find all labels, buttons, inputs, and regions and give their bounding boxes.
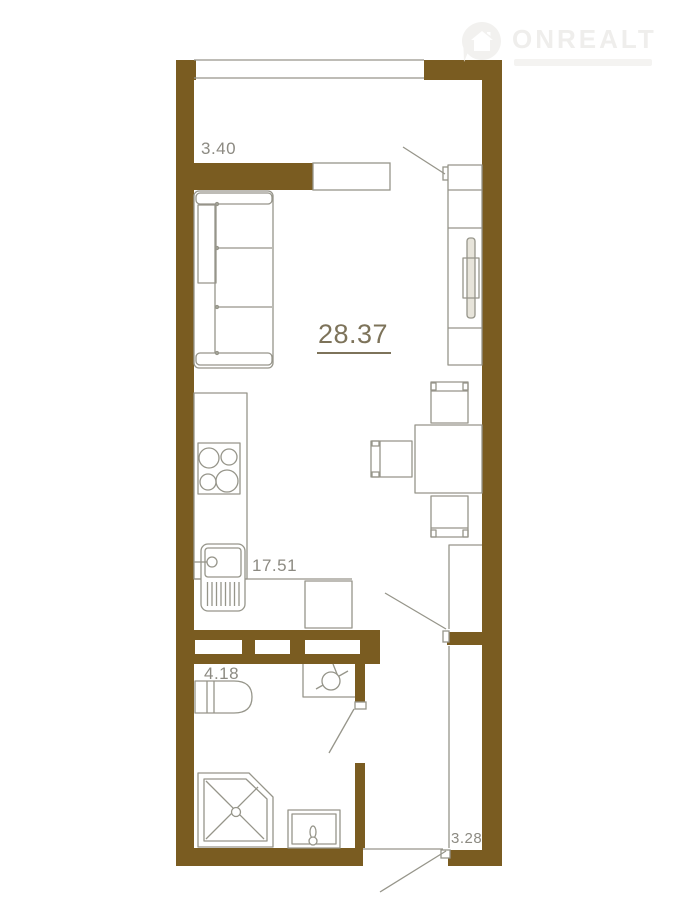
onrealt-logo-tagline [514,59,652,66]
balcony-area-label: 3.40 [201,139,236,159]
vent-niche [255,640,290,654]
dining-table [415,425,482,493]
vent-niche [195,640,242,654]
shower [198,773,273,847]
furniture [194,165,482,848]
stove [198,443,240,494]
hallway-area-label: 3.28 [451,830,482,847]
wall-top-left-corner [176,60,196,80]
wall-niches [195,640,360,654]
bathroom-area-label: 4.18 [204,664,239,684]
wall-bottom-stub [448,850,500,866]
vent-niche [305,640,360,654]
washing-machine [195,681,252,713]
onrealt-logo-icon [462,21,502,63]
wall-bathroom-right-lower [355,763,365,848]
floor-plan-drawing [0,0,678,910]
onrealt-logo-text: ONREALT [512,24,657,55]
room-door-swing [385,593,446,629]
cabinet [305,581,352,628]
kitchen-sink [194,544,245,611]
doors [329,147,446,892]
balcony-door-swing [403,147,445,174]
floor-plan: 3.40 28.37 17.51 4.18 3.28 ONREALT [0,0,678,910]
wall-right [482,60,502,866]
total-area-label: 28.37 [317,319,391,354]
chair-top [431,382,468,423]
divider-window [313,163,390,190]
wardrobe [448,165,482,365]
wall-interior-stub [447,632,483,645]
closet-upper [449,545,482,629]
bathroom-sink [288,810,340,848]
living-area-label: 17.51 [252,556,297,576]
door-frame-room [443,631,449,642]
wall-balcony-divider [176,163,313,190]
chair-left [371,441,412,477]
chair-bottom [431,496,468,537]
toilet [303,664,355,697]
entrance-door-swing [380,851,446,892]
door-frame-bathroom [355,702,366,709]
wall-bottom [176,848,363,866]
onrealt-logo: ONREALT [460,18,670,66]
sofa [194,191,273,368]
bathroom-door-swing [329,709,354,753]
